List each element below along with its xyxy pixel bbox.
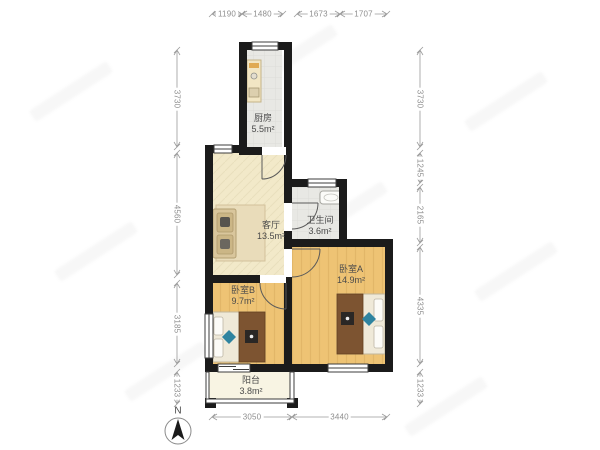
room-name: 卫生间 [306,215,333,226]
dim-label-top-1: 1480 [251,10,274,19]
room-name: 卧室B [231,285,255,296]
dim-label-right-2: 2165 [416,204,425,227]
dim-label-top-0: 1190 [216,10,238,19]
room-area: 3.6m² [306,226,333,237]
room-area: 3.8m² [239,386,262,397]
room-area: 14.9m² [337,275,365,286]
kitchen-counter [247,60,261,102]
room-name: 客厅 [257,220,285,231]
room-area: 13.5m² [257,231,285,242]
room-label-bathroom: 卫生间 3.6m² [306,215,333,237]
room-label-kitchen: 厨房 5.5m² [251,113,274,135]
dim-label-left-0: 3730 [173,87,182,110]
bed-a [337,294,385,354]
bathroom-sink [320,191,342,204]
room-label-bedroom-a: 卧室A 14.9m² [337,264,365,286]
room-area: 5.5m² [251,124,274,135]
room-name: 卧室A [337,264,365,275]
bed-b [213,312,265,362]
room-label-living: 客厅 13.5m² [257,220,285,242]
dim-label-top-2: 1673 [307,10,330,19]
dim-label-bottom-1: 3440 [328,413,351,422]
dim-label-bottom-0: 3050 [241,413,264,422]
dim-label-left-2: 3185 [173,312,182,335]
floor-plan-canvas [0,0,600,450]
compass [165,418,191,444]
room-name: 厨房 [251,113,274,124]
room-area: 9.7m² [231,296,255,307]
dim-label-right-4: 1233 [416,377,425,400]
room-label-balcony: 阳台 3.8m² [239,375,262,397]
floor-plan: 厨房 5.5m² 客厅 13.5m² 卫生间 3.6m² 卧室A 14.9m² … [0,0,600,450]
room-label-bedroom-b: 卧室B 9.7m² [231,285,255,307]
room-name: 阳台 [239,375,262,386]
dim-label-left-3: 1233 [173,377,182,400]
dim-label-left-1: 4560 [173,203,182,226]
dim-label-top-3: 1707 [352,10,375,19]
dim-label-right-1: 1245 [416,157,425,180]
dim-label-right-3: 4335 [416,294,425,317]
compass-north-label: N [174,406,181,417]
dim-label-right-0: 3730 [416,87,425,110]
